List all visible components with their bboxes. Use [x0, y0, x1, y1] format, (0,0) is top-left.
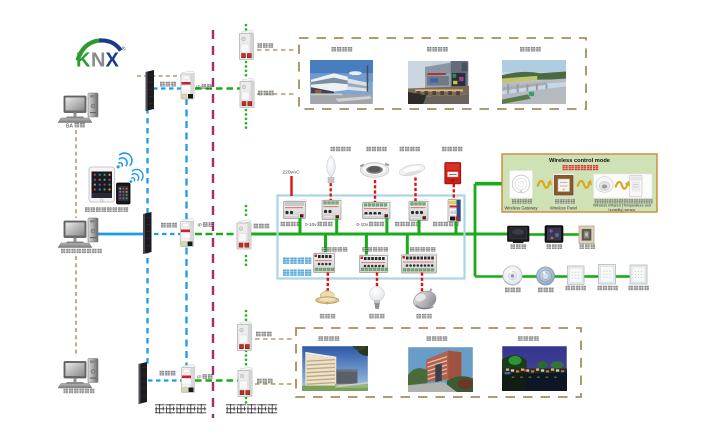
svg-text:88: 88 [450, 210, 456, 216]
svg-text:X: X [106, 50, 120, 72]
svg-text:0-10v: 0-10v [357, 222, 369, 227]
svg-text:N: N [91, 50, 105, 72]
svg-text:Wireless Gateway: Wireless Gateway [505, 205, 539, 210]
svg-text:BA: BA [66, 123, 73, 129]
svg-text:IP: IP [197, 375, 202, 381]
svg-text:K: K [76, 50, 91, 72]
svg-text:IP: IP [198, 223, 203, 229]
svg-text:Wireless Panel: Wireless Panel [550, 205, 577, 210]
svg-text:0-10v: 0-10v [305, 222, 317, 227]
svg-text:IP: IP [196, 85, 201, 91]
svg-text:®: ® [122, 46, 126, 53]
svg-text:Wireless control mode: Wireless control mode [549, 158, 610, 164]
svg-text:humidity) sensor: humidity) sensor [608, 208, 636, 212]
svg-text:220vAC: 220vAC [283, 170, 301, 176]
